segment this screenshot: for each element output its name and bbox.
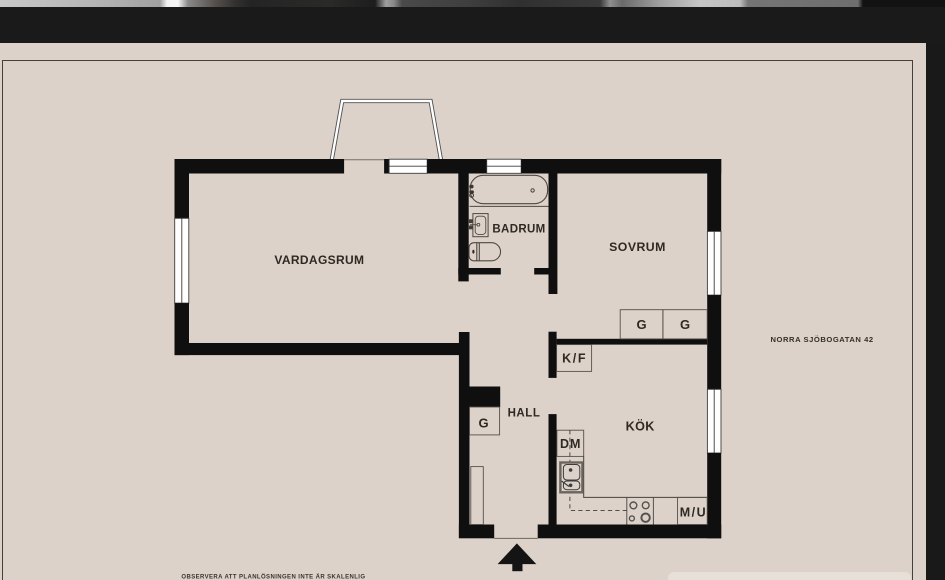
svg-text:G: G [478,415,488,430]
svg-text:NORRA SJÖBOGATAN 42: NORRA SJÖBOGATAN 42 [771,335,874,344]
svg-text:G: G [680,317,690,332]
svg-text:K/F: K/F [562,352,587,366]
svg-text:OBSERVERA ATT PLANLÖSNINGEN IN: OBSERVERA ATT PLANLÖSNINGEN INTE ÄR SKAL… [181,574,365,580]
svg-text:M/U: M/U [680,505,707,519]
svg-text:KÖK: KÖK [626,419,655,434]
svg-text:BADRUM: BADRUM [492,224,545,236]
svg-text:DM: DM [560,437,581,451]
svg-text:HALL: HALL [508,408,541,420]
svg-text:G: G [636,317,646,332]
svg-text:VARDAGSRUM: VARDAGSRUM [274,253,364,267]
svg-text:SOVRUM: SOVRUM [609,240,666,254]
